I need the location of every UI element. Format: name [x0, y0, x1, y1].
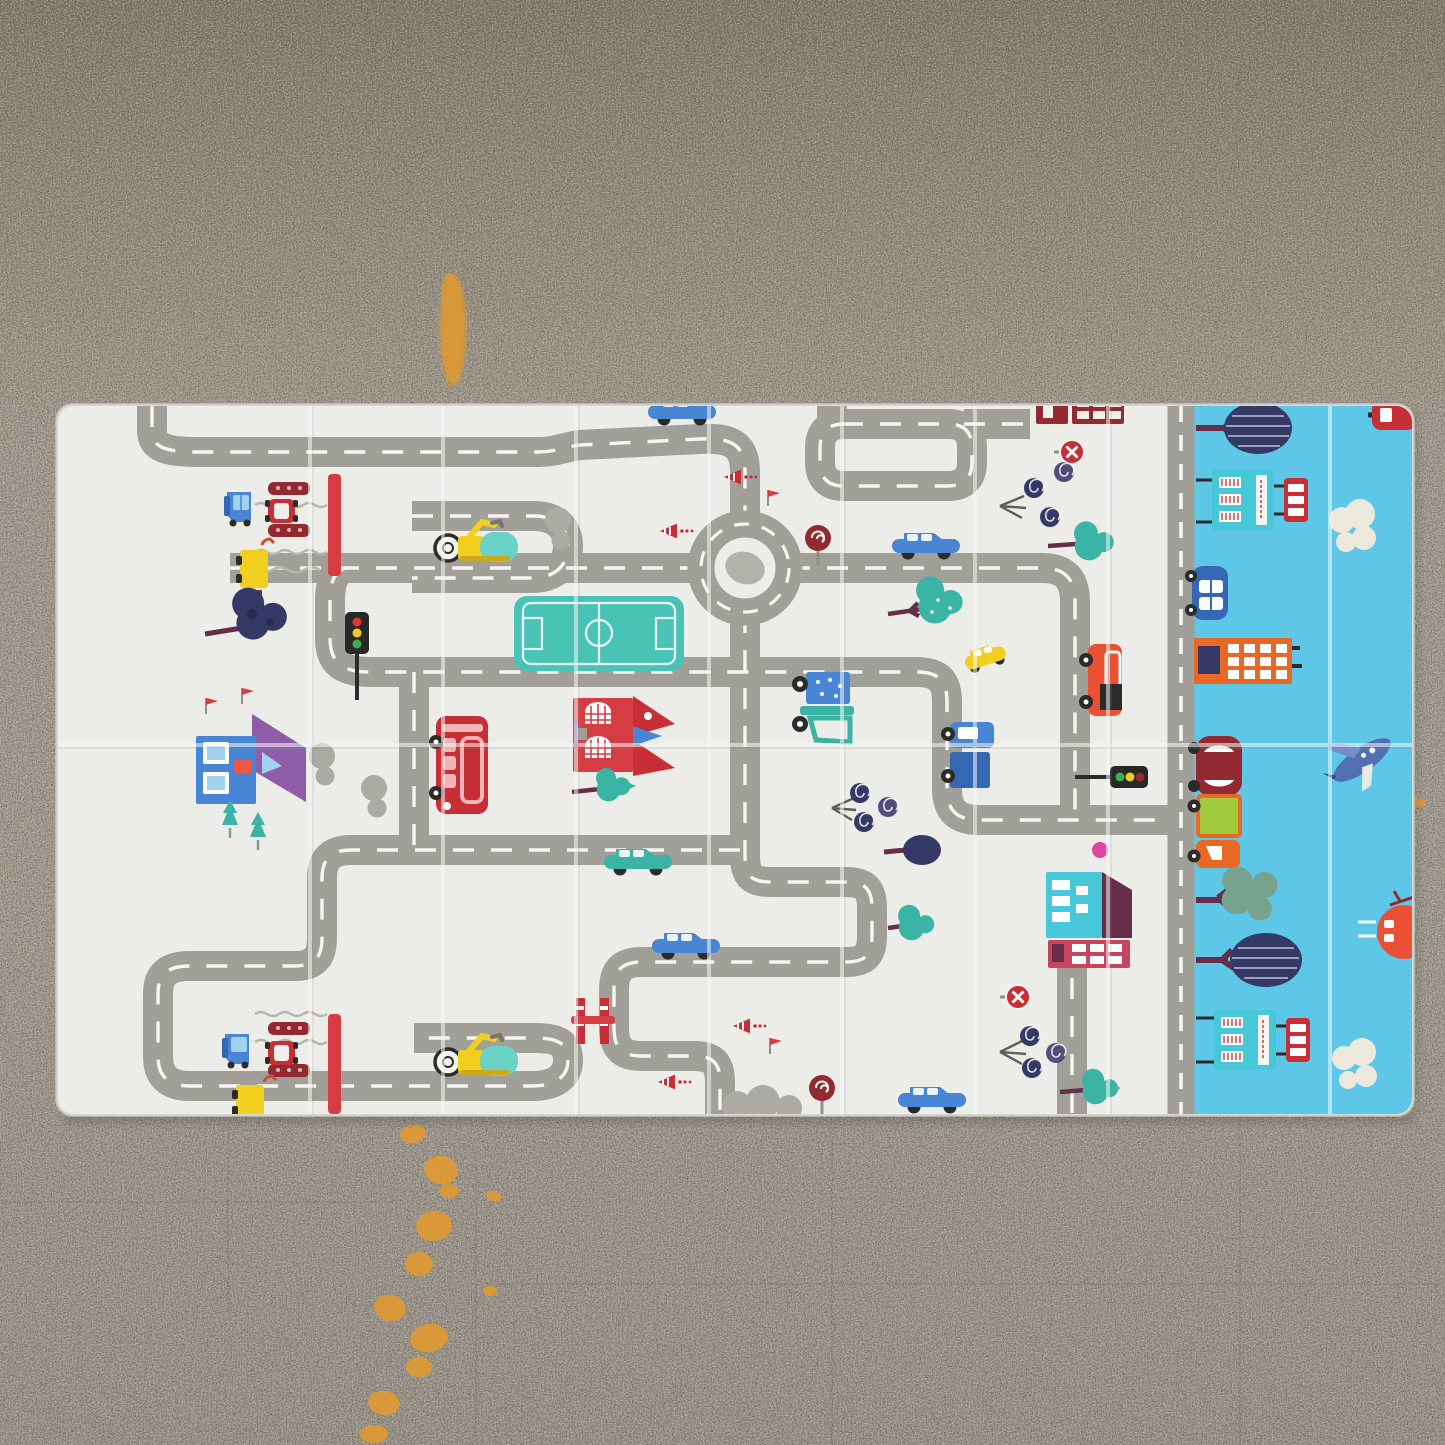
mat-sheen: [58, 406, 1412, 1114]
play-mat-photo: [0, 0, 1445, 1445]
scene-canvas: [0, 0, 1445, 1445]
play-mat: [56, 384, 1431, 1121]
